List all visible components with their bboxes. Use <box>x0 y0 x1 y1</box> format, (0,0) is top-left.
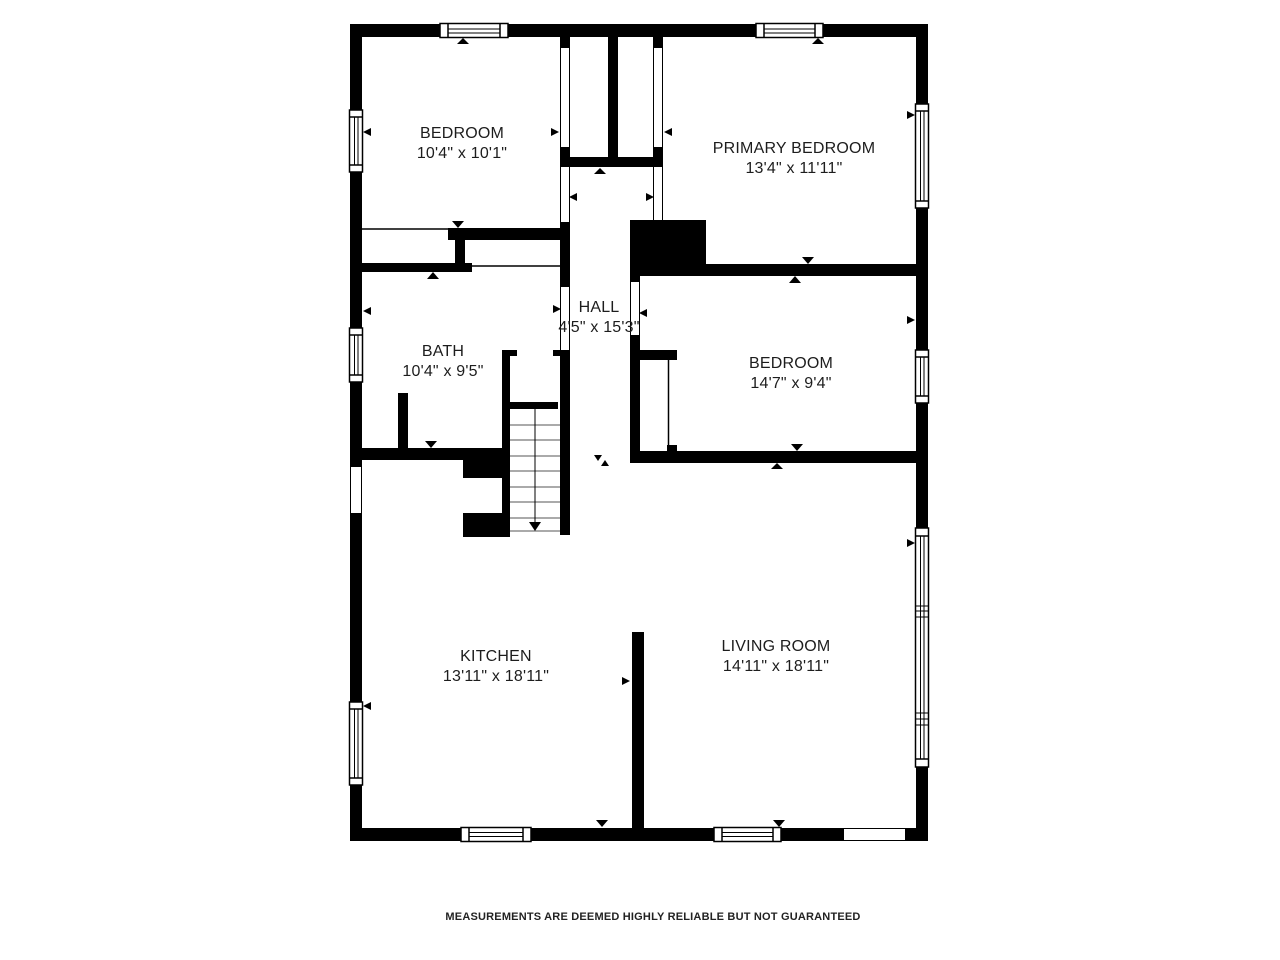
door-opening <box>844 827 905 842</box>
stairs-icon <box>510 409 560 531</box>
arrow-icon <box>569 193 577 201</box>
room-dimensions: 14'7" x 9'4" <box>749 374 833 394</box>
wall-segment <box>560 37 570 48</box>
wall-segment <box>553 350 560 356</box>
window-icon <box>440 24 508 38</box>
arrow-icon <box>789 276 801 283</box>
arrow-icon <box>596 820 608 827</box>
room-label-primary-bedroom: PRIMARY BEDROOM 13'4" x 11'11" <box>713 139 875 179</box>
arrow-icon <box>802 257 814 264</box>
room-label-living-room: LIVING ROOM 14'11" x 18'11" <box>722 637 831 677</box>
room-label-bath: BATH 10'4" x 9'5" <box>402 342 483 382</box>
wall-segment <box>560 350 570 535</box>
room-dimensions: 13'4" x 11'11" <box>713 159 875 179</box>
room-label-hall: HALL 4'5" x 15'3" <box>558 298 639 338</box>
disclaimer-text: MEASUREMENTS ARE DEEMED HIGHLY RELIABLE … <box>445 911 860 923</box>
door-opening <box>561 167 570 222</box>
room-name: BEDROOM <box>417 124 507 144</box>
arrow-icon <box>594 168 606 174</box>
arrow-icon <box>452 221 464 228</box>
window-icon <box>350 702 363 785</box>
room-dimensions: 10'4" x 9'5" <box>402 362 483 382</box>
wall-segment <box>350 24 928 37</box>
wall-segment <box>560 157 663 167</box>
room-name: BEDROOM <box>749 354 833 374</box>
arrow-icon <box>363 702 371 710</box>
room-name: BATH <box>402 342 483 362</box>
wall-segment <box>630 451 928 463</box>
closet-door-opening <box>654 48 663 147</box>
arrow-icon <box>773 820 785 827</box>
wall-segment <box>630 264 928 276</box>
arrow-icon <box>791 444 803 451</box>
floor-plan: BEDROOM 10'4" x 10'1" PRIMARY BEDROOM 13… <box>0 0 1280 960</box>
room-dimensions: 14'11" x 18'11" <box>722 657 831 677</box>
wall-segment <box>350 448 502 460</box>
floor-plan-drawing <box>0 0 1280 960</box>
arrow-icon <box>622 677 630 685</box>
door-opening <box>349 467 363 513</box>
wall-segment <box>448 228 563 240</box>
window-icon <box>350 110 363 172</box>
room-name: HALL <box>558 298 639 318</box>
window-icon <box>916 350 929 403</box>
wall-segment <box>632 632 644 841</box>
arrow-icon <box>907 539 915 547</box>
arrow-icon <box>646 193 654 201</box>
wall-segment <box>510 402 558 409</box>
window-icon <box>916 104 929 208</box>
wall-segment <box>455 240 465 263</box>
wall-segment <box>350 263 472 272</box>
room-name: LIVING ROOM <box>722 637 831 657</box>
room-label-bedroom-1: BEDROOM 10'4" x 10'1" <box>417 124 507 164</box>
arrow-icon <box>363 128 371 136</box>
arrow-icon <box>907 111 915 119</box>
wall-segment <box>638 350 677 360</box>
room-dimensions: 4'5" x 15'3" <box>558 318 639 338</box>
arrow-icon <box>457 38 469 44</box>
floor-plan-page: BEDROOM 10'4" x 10'1" PRIMARY BEDROOM 13… <box>0 0 1280 960</box>
window-icon <box>714 828 781 842</box>
arrow-icon <box>425 441 437 448</box>
room-label-kitchen: KITCHEN 13'11" x 18'11" <box>443 647 549 687</box>
arrow-icon <box>601 460 609 466</box>
room-dimensions: 13'11" x 18'11" <box>443 667 549 687</box>
room-label-bedroom-2: BEDROOM 14'7" x 9'4" <box>749 354 833 394</box>
arrow-icon <box>551 128 559 136</box>
closet-door-opening <box>561 48 570 147</box>
arrow-icon <box>812 38 824 44</box>
arrow-icon <box>594 455 602 461</box>
room-name: KITCHEN <box>443 647 549 667</box>
arrow-icon <box>639 309 647 317</box>
wall-segment <box>653 37 663 48</box>
window-icon <box>756 24 823 38</box>
arrow-icon <box>363 307 371 315</box>
stair-direction-arrow-icon <box>529 522 541 531</box>
window-icon <box>461 828 531 842</box>
window-icon <box>916 528 929 767</box>
door-opening <box>654 167 663 220</box>
arrow-icon <box>427 272 439 279</box>
room-dimensions: 10'4" x 10'1" <box>417 144 507 164</box>
wall-segment <box>463 460 502 478</box>
arrow-icon <box>664 128 672 136</box>
window-icon <box>350 328 363 382</box>
wall-segment <box>502 350 510 537</box>
wall-segment <box>463 513 510 537</box>
wall-segment <box>630 276 640 282</box>
arrow-icon <box>907 316 915 324</box>
wall-segment <box>608 37 618 157</box>
wall-segment <box>510 350 517 356</box>
arrow-icon <box>771 463 783 469</box>
room-name: PRIMARY BEDROOM <box>713 139 875 159</box>
wall-segment <box>398 393 408 448</box>
